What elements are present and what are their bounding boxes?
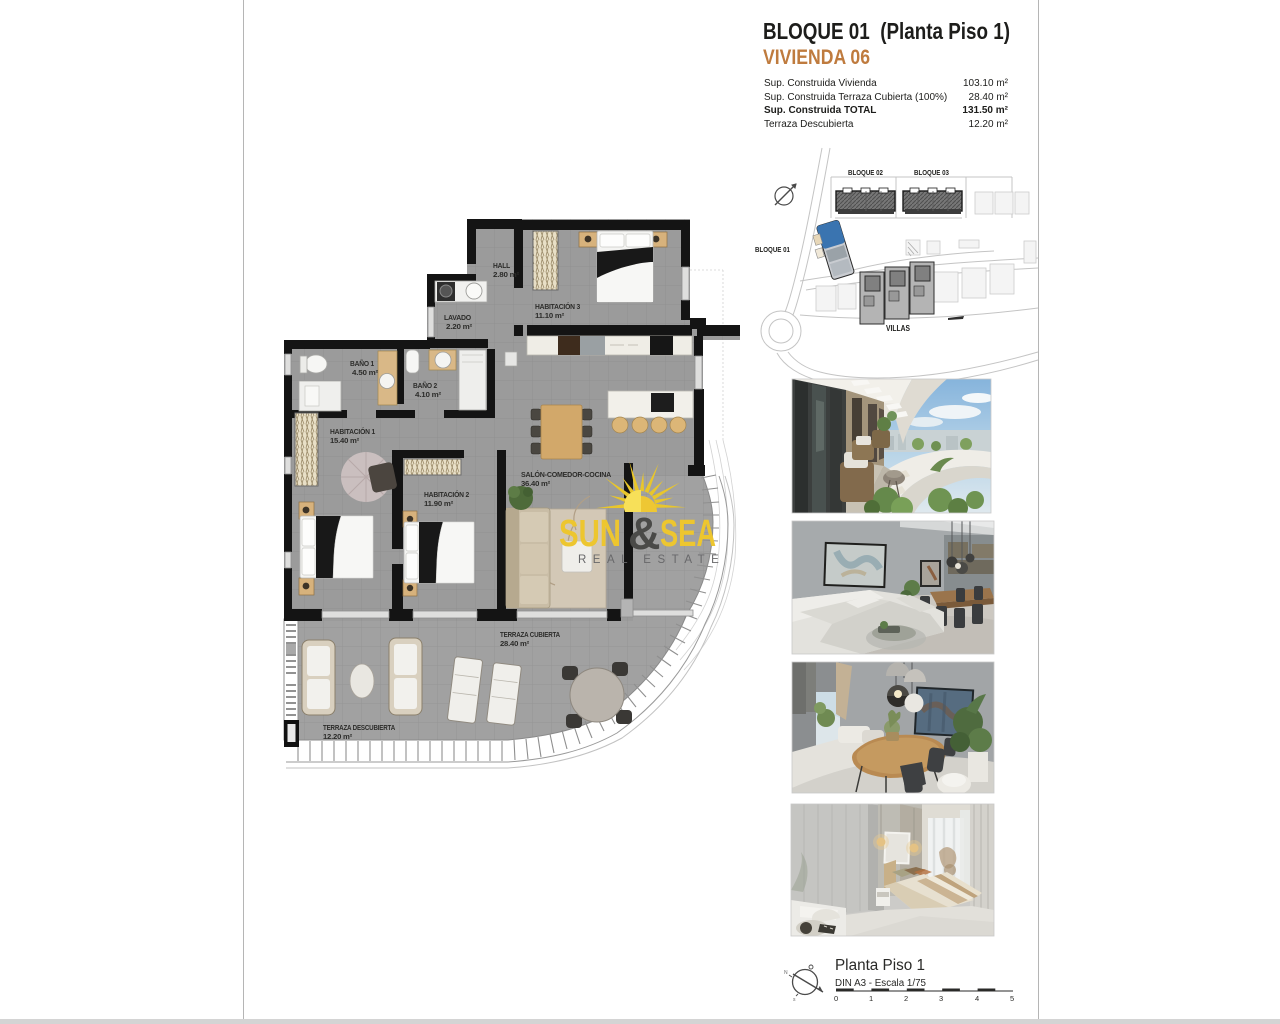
svg-text:HABITACIÓN 2: HABITACIÓN 2: [424, 490, 469, 499]
svg-text:BLOQUE 01 (Planta Piso 1): BLOQUE 01 (Planta Piso 1): [763, 18, 1010, 44]
svg-text:0: 0: [834, 994, 838, 1003]
svg-text:11.10 m²: 11.10 m²: [535, 313, 565, 320]
svg-text:2: 2: [904, 994, 908, 1003]
svg-text:2.80 m²: 2.80 m²: [493, 272, 520, 279]
svg-text:VILLAS: VILLAS: [886, 324, 911, 333]
svg-text:4: 4: [975, 994, 979, 1003]
svg-text:BLOQUE 01: BLOQUE 01: [755, 247, 790, 254]
svg-text:BLOQUE 03: BLOQUE 03: [914, 170, 949, 177]
svg-text:VIVIENDA 06: VIVIENDA 06: [763, 46, 870, 69]
svg-text:3: 3: [939, 994, 943, 1003]
svg-text:36.40 m²: 36.40 m²: [521, 481, 551, 488]
svg-text:2.20 m²: 2.20 m²: [446, 324, 473, 331]
svg-text:HABITACIÓN 3: HABITACIÓN 3: [535, 302, 580, 311]
svg-text:TERRAZA CUBIERTA: TERRAZA CUBIERTA: [500, 632, 560, 639]
svg-text:5: 5: [1010, 994, 1014, 1003]
svg-text:12.20 m²: 12.20 m²: [323, 734, 353, 741]
svg-text:Sup. Construida Terraza Cubier: Sup. Construida Terraza Cubierta (100%): [764, 92, 947, 103]
svg-text:103.10 m²: 103.10 m²: [963, 78, 1009, 89]
svg-text:&: &: [628, 508, 661, 559]
svg-text:1: 1: [869, 994, 873, 1003]
svg-text:SEA: SEA: [660, 513, 716, 555]
svg-text:15.40 m²: 15.40 m²: [330, 438, 360, 445]
svg-text:Terraza Descubierta: Terraza Descubierta: [764, 119, 854, 130]
svg-text:SUN: SUN: [559, 513, 621, 555]
svg-text:12.20 m²: 12.20 m²: [969, 119, 1009, 130]
svg-text:BAÑO 2: BAÑO 2: [413, 381, 437, 390]
svg-text:TERRAZA DESCUBIERTA: TERRAZA DESCUBIERTA: [323, 725, 395, 732]
svg-text:Sup. Construida TOTAL: Sup. Construida TOTAL: [764, 105, 876, 116]
svg-text:131.50 m²: 131.50 m²: [962, 105, 1008, 116]
svg-text:BLOQUE 02: BLOQUE 02: [848, 170, 883, 177]
svg-text:Planta Piso 1: Planta Piso 1: [835, 957, 925, 974]
svg-text:LAVADO: LAVADO: [444, 315, 472, 322]
svg-text:REAL ESTATE: REAL ESTATE: [578, 554, 725, 566]
svg-text:HABITACIÓN 1: HABITACIÓN 1: [330, 427, 375, 436]
svg-text:28.40 m²: 28.40 m²: [969, 92, 1009, 103]
svg-text:DIN A3 - Escala 1/75: DIN A3 - Escala 1/75: [835, 978, 926, 989]
svg-text:BAÑO 1: BAÑO 1: [350, 359, 374, 368]
svg-text:4.50 m²: 4.50 m²: [352, 370, 379, 377]
svg-text:N: N: [784, 970, 788, 976]
svg-text:4.10 m²: 4.10 m²: [415, 392, 442, 399]
svg-text:28.40 m²: 28.40 m²: [500, 641, 530, 648]
svg-text:SALÓN-COMEDOR-COCINA: SALÓN-COMEDOR-COCINA: [521, 470, 611, 479]
svg-text:11.90 m²: 11.90 m²: [424, 501, 454, 508]
svg-text:HALL: HALL: [493, 263, 511, 270]
svg-text:Sup. Construida Vivienda: Sup. Construida Vivienda: [764, 78, 877, 89]
